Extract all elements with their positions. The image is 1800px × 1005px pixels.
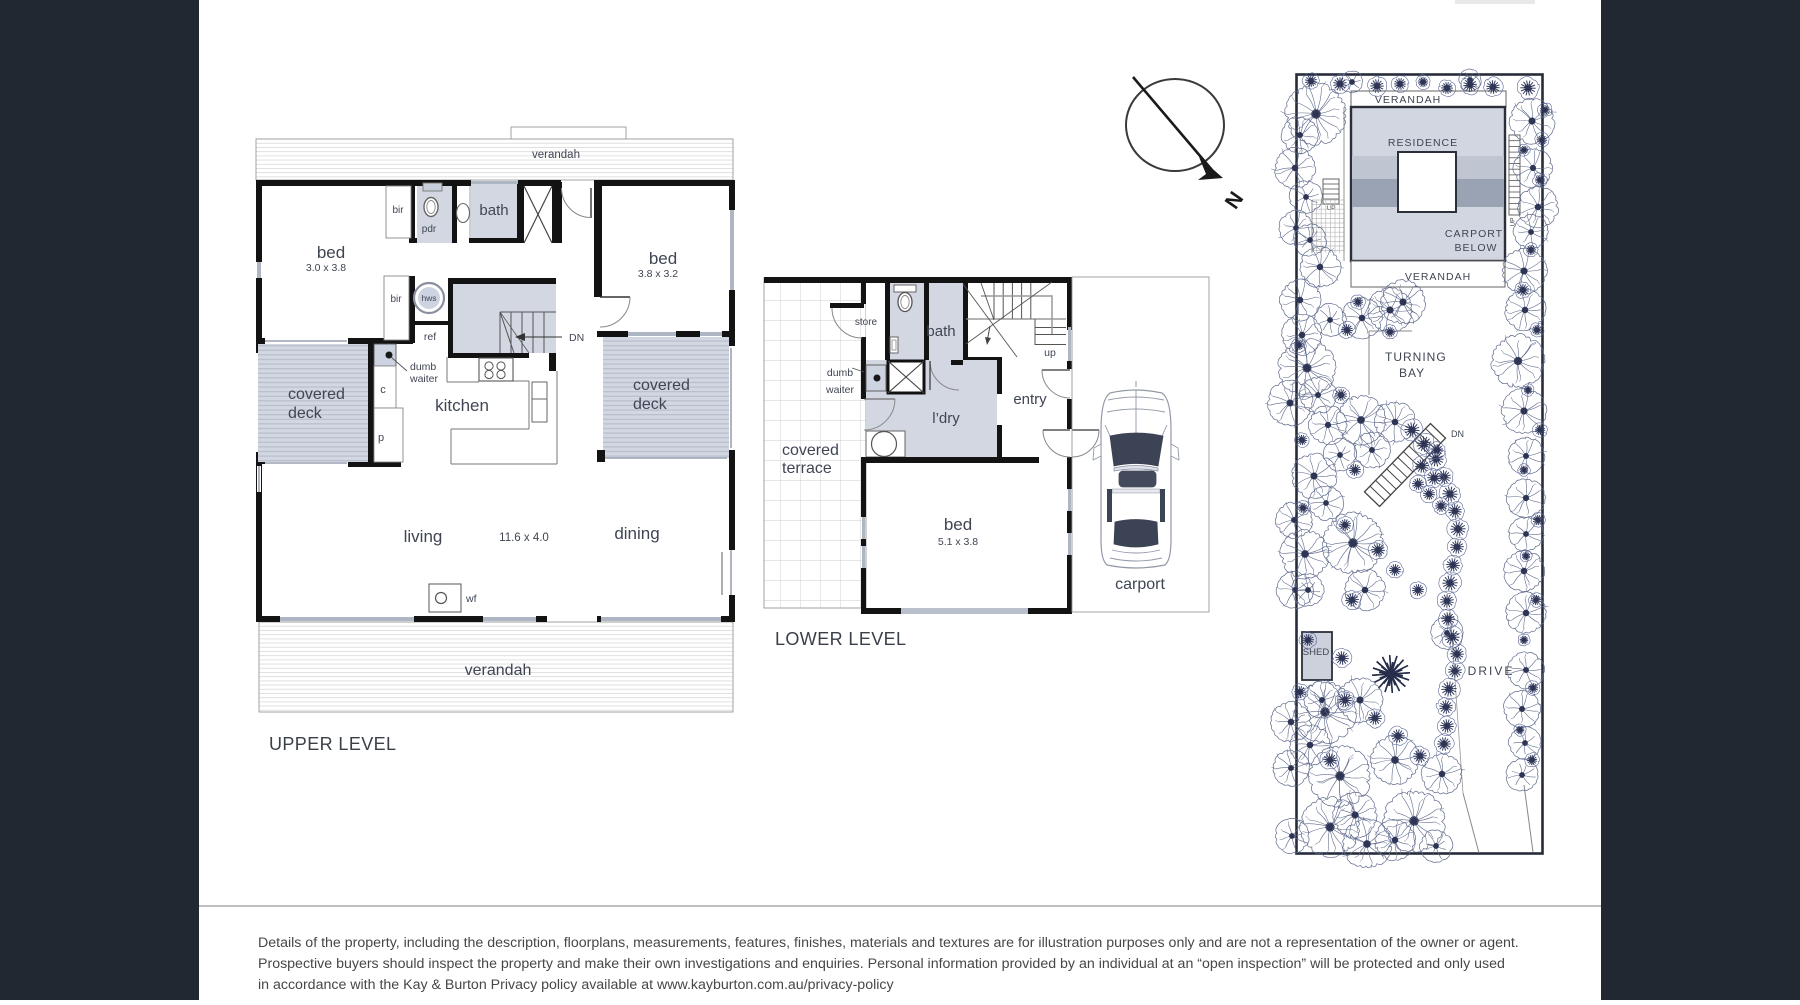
svg-text:3.8 x 3.2: 3.8 x 3.2 [638, 268, 678, 280]
svg-text:DN: DN [1451, 429, 1464, 439]
svg-text:hws: hws [421, 293, 436, 303]
svg-text:SHED: SHED [1303, 647, 1330, 658]
svg-text:l’dry: l’dry [932, 410, 960, 427]
svg-text:RESIDENCE: RESIDENCE [1388, 137, 1458, 149]
svg-text:kitchen: kitchen [435, 396, 489, 415]
svg-text:bed: bed [944, 515, 972, 534]
svg-text:dumb: dumb [827, 367, 853, 379]
svg-text:ref: ref [424, 331, 436, 343]
svg-text:covered: covered [288, 386, 345, 403]
svg-text:VERANDAH: VERANDAH [1375, 94, 1441, 106]
svg-text:VERANDAH: VERANDAH [1405, 271, 1471, 283]
svg-text:CARPORT: CARPORT [1445, 228, 1503, 240]
svg-text:wf: wf [465, 593, 477, 605]
svg-text:verandah: verandah [532, 149, 580, 161]
svg-text:3.0 x 3.8: 3.0 x 3.8 [306, 262, 346, 274]
svg-text:deck: deck [288, 405, 323, 422]
svg-text:c: c [380, 384, 386, 396]
svg-text:BELOW: BELOW [1455, 242, 1498, 254]
svg-text:bed: bed [649, 249, 677, 268]
svg-text:bed: bed [317, 243, 345, 262]
svg-text:up: up [1044, 347, 1056, 359]
svg-text:bath: bath [479, 202, 508, 219]
svg-text:carport: carport [1115, 576, 1165, 593]
svg-text:in accordance with the Kay & B: in accordance with the Kay & Burton Priv… [258, 977, 894, 993]
svg-text:waiter: waiter [409, 373, 439, 385]
svg-text:Details of the property, inclu: Details of the property, including the d… [258, 935, 1519, 951]
svg-text:BAY: BAY [1399, 366, 1425, 380]
svg-text:11.6 x 4.0: 11.6 x 4.0 [499, 532, 549, 544]
svg-text:5.1 x 3.8: 5.1 x 3.8 [938, 536, 978, 548]
svg-text:Prospective buyers should insp: Prospective buyers should inspect the pr… [258, 956, 1505, 972]
svg-text:UP: UP [1326, 205, 1335, 212]
svg-text:entry: entry [1013, 391, 1047, 408]
svg-text:deck: deck [633, 396, 668, 413]
svg-text:dining: dining [614, 524, 659, 543]
svg-text:UPPER LEVEL: UPPER LEVEL [269, 734, 396, 754]
svg-text:waiter: waiter [825, 384, 855, 396]
svg-text:LOWER LEVEL: LOWER LEVEL [775, 629, 906, 649]
svg-text:DN: DN [569, 332, 584, 344]
svg-text:bir: bir [392, 205, 404, 216]
svg-text:store: store [855, 317, 878, 328]
svg-text:living: living [404, 527, 443, 546]
svg-text:covered: covered [633, 377, 690, 394]
svg-text:bath: bath [926, 323, 955, 340]
svg-text:covered: covered [782, 442, 839, 459]
svg-text:TURNING: TURNING [1385, 350, 1447, 364]
svg-text:terrace: terrace [782, 460, 832, 477]
svg-text:dumb: dumb [410, 361, 436, 373]
svg-text:verandah: verandah [465, 662, 532, 679]
svg-text:bir: bir [390, 294, 402, 305]
svg-text:pdr: pdr [422, 224, 437, 235]
svg-text:p: p [378, 432, 384, 444]
